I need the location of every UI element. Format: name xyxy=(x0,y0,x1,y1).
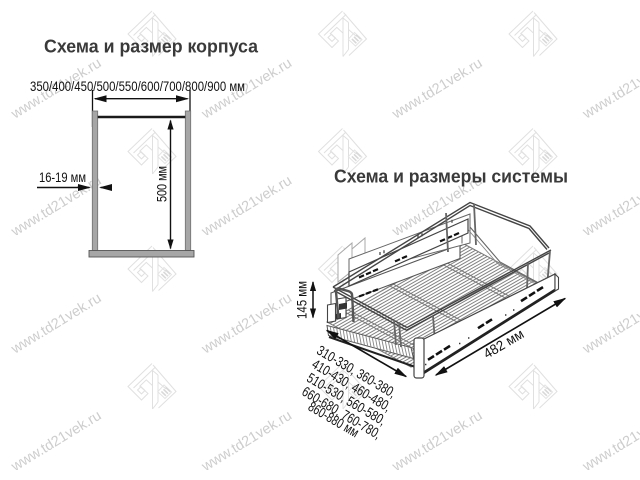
svg-text:145 мм: 145 мм xyxy=(294,281,310,319)
svg-text:350/400/450/500/550/600/700/80: 350/400/450/500/550/600/700/800/900 мм xyxy=(30,79,245,94)
svg-text:16-19 мм: 16-19 мм xyxy=(39,169,86,185)
svg-text:Схема и размер корпуса: Схема и размер корпуса xyxy=(44,36,259,57)
svg-text:Схема и размеры системы: Схема и размеры системы xyxy=(334,166,568,187)
svg-text:500 мм: 500 мм xyxy=(154,166,170,202)
